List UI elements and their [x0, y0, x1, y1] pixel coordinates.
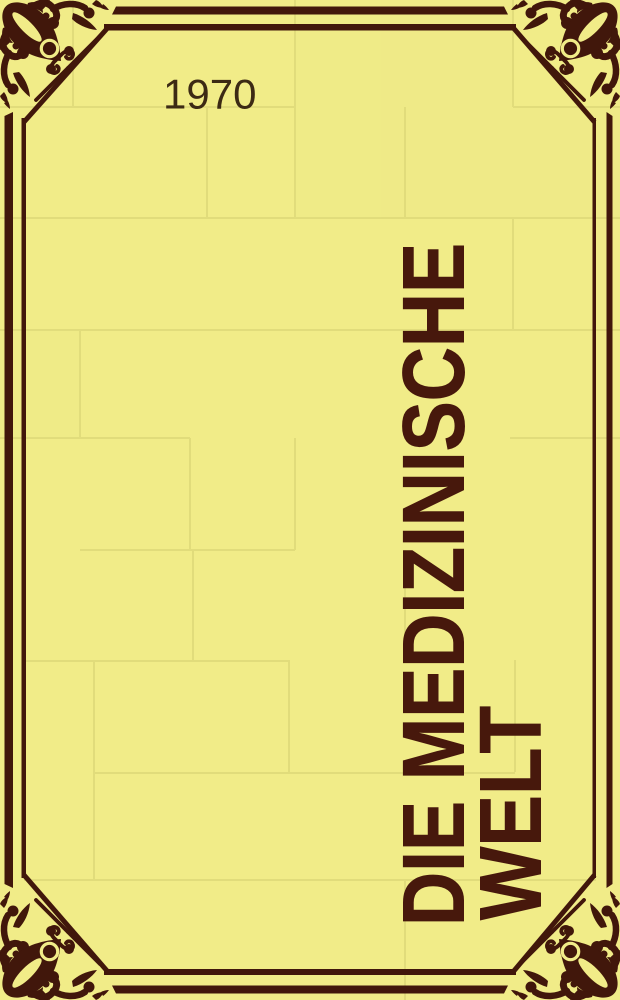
svg-text:WELT: WELT: [463, 706, 560, 920]
svg-text:1970: 1970: [163, 71, 256, 118]
